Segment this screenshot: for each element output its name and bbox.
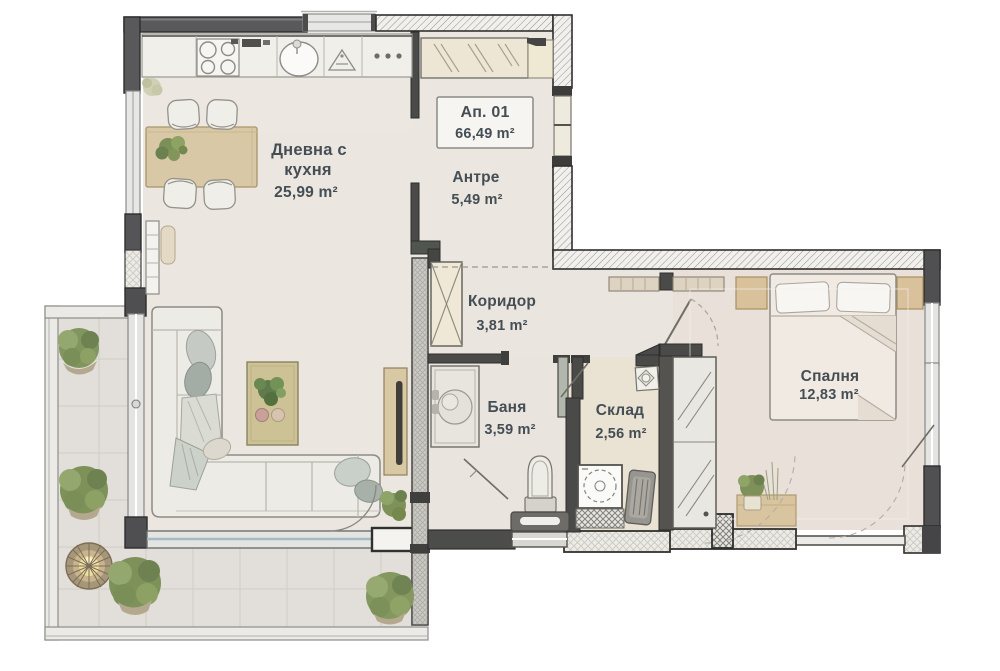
- svg-text:Антре: Антре: [452, 169, 499, 186]
- svg-text:66,49 m²: 66,49 m²: [455, 126, 515, 142]
- svg-text:Ап. 01: Ап. 01: [460, 104, 509, 121]
- svg-text:Спалня: Спалня: [801, 368, 860, 385]
- svg-text:Склад: Склад: [596, 402, 644, 419]
- svg-text:кухня: кухня: [284, 161, 331, 179]
- svg-text:12,83 m²: 12,83 m²: [799, 387, 859, 403]
- svg-text:Баня: Баня: [488, 399, 527, 416]
- svg-text:25,99 m²: 25,99 m²: [274, 184, 338, 201]
- svg-text:5,49 m²: 5,49 m²: [451, 192, 502, 208]
- svg-text:2,56 m²: 2,56 m²: [595, 426, 646, 442]
- svg-text:3,59 m²: 3,59 m²: [484, 422, 535, 438]
- svg-text:3,81 m²: 3,81 m²: [476, 318, 527, 334]
- svg-text:Коридор: Коридор: [468, 293, 536, 310]
- svg-text:Дневна с: Дневна с: [271, 141, 347, 159]
